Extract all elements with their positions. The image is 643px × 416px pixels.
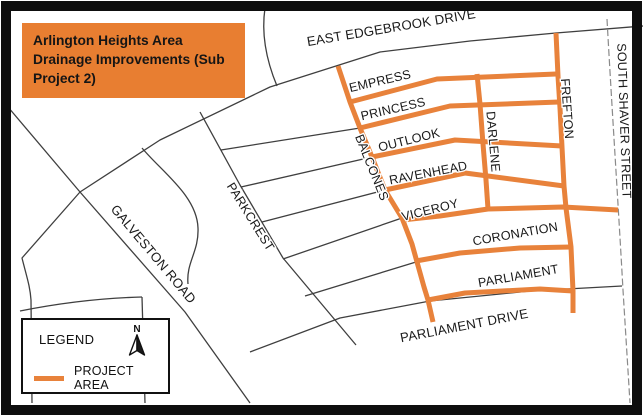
road-parkcrest: [200, 112, 356, 345]
street-label-galveston: GALVESTON ROAD: [108, 202, 199, 307]
north-arrow-right-half: [137, 335, 145, 355]
north-arrow-label: N: [133, 324, 140, 335]
legend-item-label: PROJECT AREA: [74, 364, 162, 392]
street-label-south-shaver: SOUTH SHAVER STREET: [614, 43, 633, 199]
legend-box: LEGEND N PROJECT AREA: [21, 318, 170, 394]
road-viceroy-west: [283, 218, 402, 259]
north-arrow-left-half: [130, 335, 138, 355]
street-label-parliament-drive: PARLIAMENT DRIVE: [399, 306, 530, 346]
street-label-coronation: CORONATION: [472, 220, 560, 249]
title-box: Arlington Heights Area Drainage Improvem…: [22, 23, 245, 98]
north-arrow-icon: N: [125, 323, 149, 359]
legend-item-project-area: PROJECT AREA: [34, 364, 162, 392]
street-label-empress: EMPRESS: [348, 67, 413, 95]
road-ravenhead-west: [262, 190, 385, 222]
road-outlook-west: [241, 157, 372, 187]
road-legend-curve: [20, 297, 142, 311]
road-coronation-west: [305, 262, 416, 296]
project-area-swatch: [34, 376, 64, 381]
road-top-connector: [264, 8, 277, 86]
legend-header: LEGEND: [39, 332, 94, 347]
street-label-east-edgebrook: EAST EDGEBROOK DRIVE: [306, 6, 477, 49]
map-title: Arlington Heights Area Drainage Improvem…: [33, 33, 225, 86]
street-label-parliament: PARLIAMENT: [477, 262, 560, 290]
street-label-parkcrest: PARKCREST: [224, 180, 277, 254]
project-line-coronation: [416, 247, 571, 261]
road-princess-west: [221, 128, 360, 150]
street-label-viceroy: VICEROY: [400, 196, 460, 224]
map-frame: EAST EDGEBROOK DRIVE SOUTH SHAVER STREET…: [0, 0, 643, 416]
